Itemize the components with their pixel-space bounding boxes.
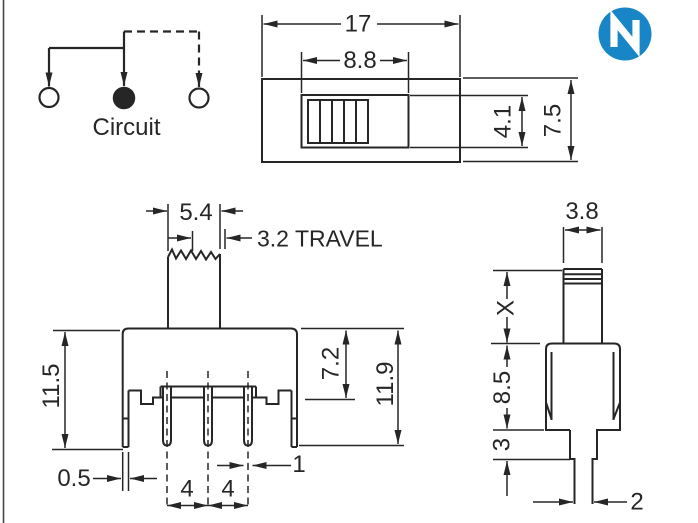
dim-travel: 3.2 TRAVEL xyxy=(169,226,383,252)
svg-text:3: 3 xyxy=(489,438,516,451)
svg-text:X: X xyxy=(493,300,520,316)
svg-text:0.5: 0.5 xyxy=(57,465,90,492)
dim-slot-height: 4.1 xyxy=(410,96,528,148)
dim-bracket-thickness: 0.5 xyxy=(57,452,157,492)
dim-pin-thickness: 2 xyxy=(533,489,644,516)
front-knob xyxy=(168,250,220,329)
brand-logo xyxy=(599,8,652,61)
front-view: 5.4 3.2 TRAVEL 11.5 7.2 11.9 xyxy=(38,199,404,507)
svg-text:3.2 TRAVEL: 3.2 TRAVEL xyxy=(257,226,383,252)
dim-stub-height: 3 xyxy=(489,438,571,496)
terminal-open-right xyxy=(190,89,209,108)
svg-text:8.5: 8.5 xyxy=(489,371,516,404)
svg-text:11.9: 11.9 xyxy=(372,362,399,407)
svg-text:11.5: 11.5 xyxy=(38,364,65,409)
side-inner-frame xyxy=(546,352,620,420)
dim-slot-width: 8.8 xyxy=(302,47,409,93)
svg-text:4.1: 4.1 xyxy=(490,105,517,138)
slide-switch-technical-drawing: Circuit 17 8.8 xyxy=(0,0,698,523)
circuit-diagram: Circuit xyxy=(40,32,209,142)
svg-text:5.4: 5.4 xyxy=(179,199,212,226)
svg-text:7.2: 7.2 xyxy=(318,347,345,380)
circuit-label: Circuit xyxy=(92,114,160,141)
dim-pin-width: 1 xyxy=(217,451,306,478)
dim-overall-height: 11.9 xyxy=(299,331,404,446)
front-pins xyxy=(163,371,252,507)
dim-knob-width: 5.4 xyxy=(146,199,243,251)
svg-text:4: 4 xyxy=(221,476,234,503)
dim-knob-depth: 3.8 xyxy=(564,198,603,263)
top-view: 17 8.8 4.1 7.5 xyxy=(262,11,578,163)
dim-body-depth-height: 8.5 xyxy=(489,346,544,431)
side-knob xyxy=(564,269,603,344)
svg-text:1: 1 xyxy=(292,451,305,478)
terminal-common-filled xyxy=(114,88,135,109)
side-view: 3.8 X 8.5 3 2 xyxy=(489,198,644,516)
svg-text:4: 4 xyxy=(180,476,193,503)
svg-text:3.8: 3.8 xyxy=(565,198,598,225)
drawing-svg: Circuit 17 8.8 xyxy=(0,0,698,523)
dim-overall-depth: 7.5 xyxy=(463,78,578,162)
svg-text:8.8: 8.8 xyxy=(343,47,376,74)
svg-text:17: 17 xyxy=(345,11,372,38)
knob-break-line xyxy=(168,250,220,260)
svg-text:7.5: 7.5 xyxy=(540,104,567,137)
top-view-knob xyxy=(308,100,368,143)
dim-mount-height: 11.5 xyxy=(38,331,123,450)
dim-knob-height: X xyxy=(491,271,562,344)
terminal-open-left xyxy=(40,88,59,107)
side-housing-outline xyxy=(546,344,620,505)
svg-text:2: 2 xyxy=(630,489,643,516)
